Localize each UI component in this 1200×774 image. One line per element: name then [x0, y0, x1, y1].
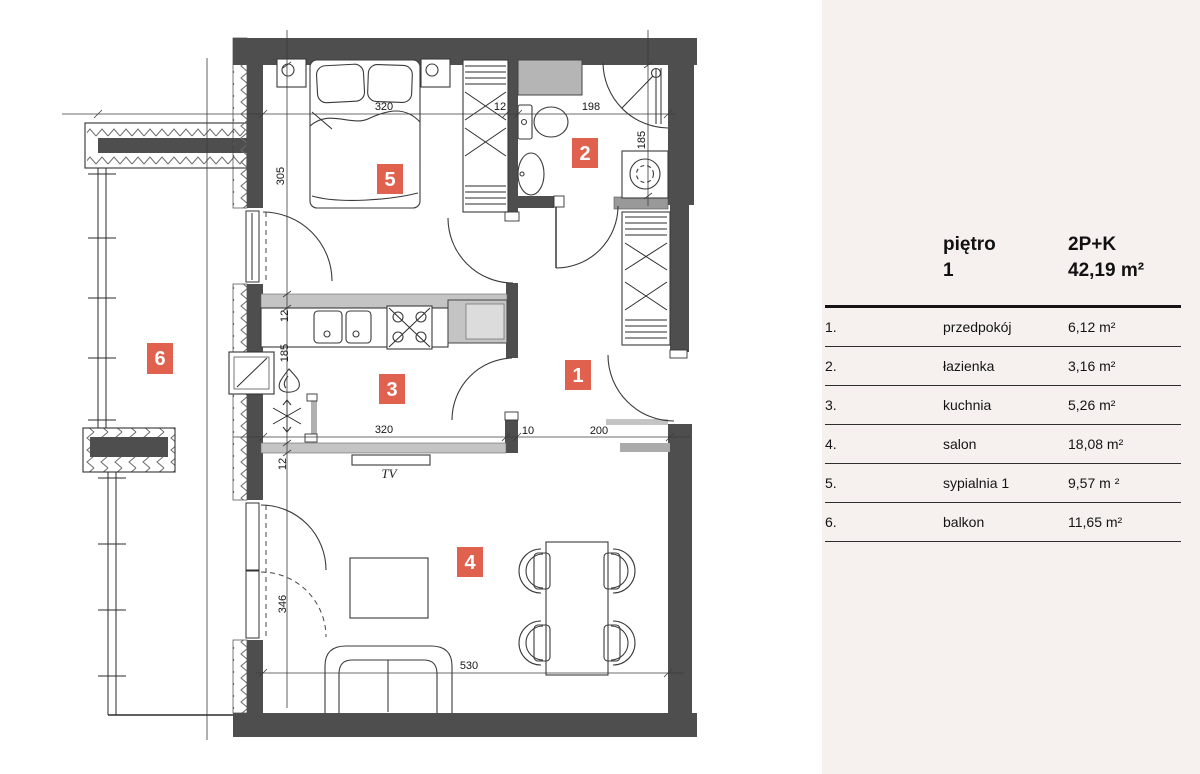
row-number: 1.	[825, 319, 837, 335]
bathroom-bottom-wall	[518, 196, 554, 208]
badge-living-room: 4	[457, 547, 483, 577]
dim-bathroom-depth: 185	[636, 131, 648, 149]
badge-bathroom: 2	[572, 138, 598, 168]
washing-machine	[622, 151, 668, 198]
room-area: 18,08 m²	[1068, 436, 1123, 452]
room-name: przedpokój	[943, 319, 1012, 335]
dim-living-width: 530	[460, 660, 478, 672]
dim-hall-wall: 10	[522, 425, 534, 437]
kitchen-window	[229, 352, 274, 394]
room-area: 11,65 m²	[1068, 514, 1122, 530]
entrance-door-hinge	[670, 350, 687, 358]
balcony-wall-core	[98, 138, 247, 153]
svg-text:5: 5	[384, 169, 395, 191]
floorplan-page: TV	[0, 0, 1200, 774]
bed	[310, 60, 420, 208]
fridge-unit	[448, 300, 507, 343]
bottom-wall	[233, 713, 697, 737]
dim-kitchen-width: 320	[375, 424, 393, 436]
nightstand-left	[277, 59, 306, 87]
room-name: sypialnia 1	[943, 475, 1009, 491]
hallway-wardrobe	[622, 212, 670, 345]
svg-text:6: 6	[154, 348, 165, 370]
bathroom-counter	[518, 60, 582, 95]
dim-tv-wall: 12	[277, 458, 289, 470]
nightstand-right	[421, 59, 450, 87]
floor-number: 1	[943, 258, 996, 284]
badge-bedroom: 5	[377, 164, 403, 194]
room-table: 1. przedpokój 6,12 m² 2. łazienka 3,16 m…	[825, 308, 1181, 542]
balcony-pillar	[83, 428, 175, 472]
dim-kitchen-depth: 185	[279, 344, 291, 362]
toilet	[518, 105, 568, 139]
svg-text:4: 4	[464, 552, 476, 574]
row-number: 4.	[825, 436, 837, 452]
row-number: 3.	[825, 397, 837, 413]
right-wall-upper	[668, 38, 694, 205]
room-area: 9,57 m ²	[1068, 475, 1119, 491]
hall-shelf	[620, 443, 670, 452]
room-area: 5,26 m²	[1068, 397, 1115, 413]
table-row: 3. kuchnia 5,26 m²	[825, 386, 1181, 425]
stove	[387, 306, 432, 349]
table-row: 6. balkon 11,65 m²	[825, 503, 1181, 542]
table-row: 1. przedpokój 6,12 m²	[825, 308, 1181, 347]
room-area: 6,12 m²	[1068, 319, 1115, 335]
row-number: 6.	[825, 514, 837, 530]
balcony-wall-insulation-top	[87, 124, 245, 138]
sink	[518, 153, 544, 195]
bathroom-door-hinge	[554, 196, 564, 207]
room-name: kuchnia	[943, 397, 991, 413]
row-number: 2.	[825, 358, 837, 374]
floor-label: piętro	[943, 232, 996, 258]
badge-hallway: 1	[565, 360, 591, 390]
dim-living-depth: 346	[277, 595, 289, 613]
svg-text:3: 3	[386, 379, 397, 401]
dim-bathroom-width: 198	[582, 101, 600, 113]
tv-label: TV	[381, 466, 398, 481]
dim-kitchen-top-wall: 12	[279, 310, 291, 322]
dim-bedroom-width: 320	[375, 101, 393, 113]
dim-bedroom-depth: 305	[275, 167, 287, 185]
balcony-wall-insulation-bottom	[87, 153, 245, 167]
total-area: 42,19 m²	[1068, 258, 1144, 284]
table-row: 2. łazienka 3,16 m²	[825, 347, 1181, 386]
room-name: salon	[943, 436, 976, 452]
dim-top-wall: 12	[494, 101, 506, 113]
dim-hallway-width: 200	[590, 425, 608, 437]
svg-text:2: 2	[579, 143, 590, 165]
table-row: 4. salon 18,08 m²	[825, 425, 1181, 464]
badge-kitchen: 3	[379, 374, 405, 404]
tv-wall	[261, 443, 506, 453]
info-panel: piętro 1 2P+K 42,19 m² 1. przedpokój 6,1…	[822, 0, 1200, 774]
svg-text:1: 1	[572, 365, 583, 387]
layout-type: 2P+K	[1068, 232, 1144, 258]
room-name: balkon	[943, 514, 984, 530]
bedroom-door-hinge	[505, 212, 519, 221]
kitchen-door-hinge	[505, 412, 518, 420]
floorplan-drawing: TV	[0, 0, 822, 774]
room-name: łazienka	[943, 358, 994, 374]
badge-balcony: 6	[147, 343, 173, 374]
kitchen-hall-wall	[506, 283, 518, 358]
bedroom-wardrobe	[463, 60, 508, 212]
table-row: 5. sypialnia 1 9,57 m ²	[825, 464, 1181, 503]
row-number: 5.	[825, 475, 837, 491]
room-area: 3,16 m²	[1068, 358, 1115, 374]
